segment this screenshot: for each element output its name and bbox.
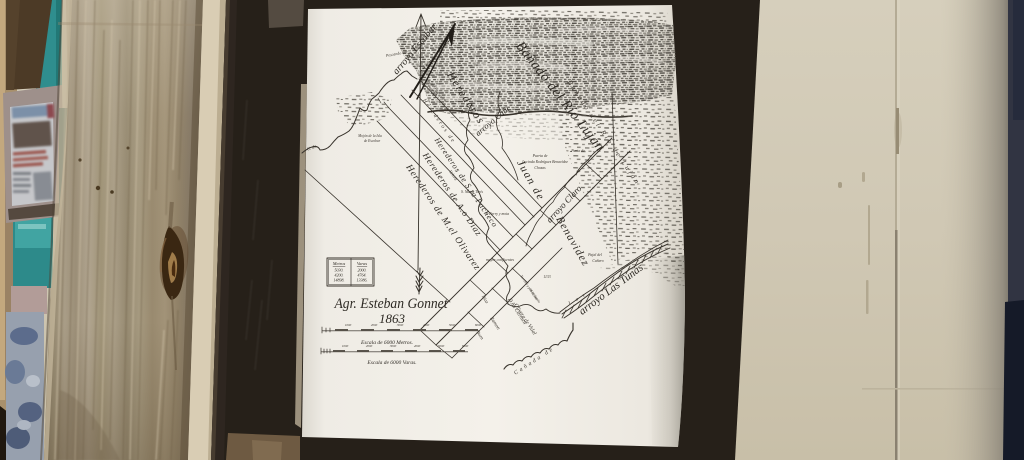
svg-text:4000: 4000 bbox=[423, 323, 430, 327]
svg-text:3000: 3000 bbox=[390, 344, 397, 348]
svg-text:2000: 2000 bbox=[366, 344, 373, 348]
svg-text:Pajal del: Pajal del bbox=[587, 253, 602, 257]
svg-text:1000: 1000 bbox=[345, 323, 352, 327]
svg-text:Escala de 6000 Varas.: Escala de 6000 Varas. bbox=[366, 360, 416, 366]
svg-text:Puerta de: Puerta de bbox=[532, 154, 548, 158]
svg-text:1000: 1000 bbox=[342, 344, 349, 348]
svg-text:6000: 6000 bbox=[475, 323, 482, 327]
svg-text:Varas: Varas bbox=[357, 261, 368, 266]
svg-text:13386.: 13386. bbox=[357, 278, 368, 283]
svg-text:de Escobar: de Escobar bbox=[364, 139, 381, 143]
svg-text:Metros: Metros bbox=[332, 261, 346, 266]
svg-text:S. María Torís: S. María Torís bbox=[461, 190, 483, 194]
svg-text:5000: 5000 bbox=[449, 323, 456, 327]
svg-text:14898.: 14898. bbox=[334, 278, 345, 283]
svg-text:Mojón de la Isla: Mojón de la Isla bbox=[357, 134, 382, 138]
svg-text:3000: 3000 bbox=[397, 323, 404, 327]
svg-text:2000: 2000 bbox=[371, 323, 378, 327]
svg-text:Agr. Esteban Gonnet: Agr. Esteban Gonnet bbox=[334, 296, 449, 312]
svg-text:A. Parry y mota: A. Parry y mota bbox=[484, 212, 509, 216]
svg-text:Punta de: Punta de bbox=[570, 149, 585, 153]
svg-text:Lucinda Rodríguez Benavídez: Lucinda Rodríguez Benavídez bbox=[521, 160, 568, 164]
svg-text:5000: 5000 bbox=[438, 344, 445, 348]
svg-text:1133: 1133 bbox=[543, 275, 550, 279]
svg-text:Cañero: Cañero bbox=[592, 259, 603, 263]
svg-text:4000: 4000 bbox=[414, 344, 421, 348]
svg-text:mayor confluentes: mayor confluentes bbox=[486, 258, 514, 262]
svg-text:6000: 6000 bbox=[462, 344, 469, 348]
svg-text:Chozas: Chozas bbox=[534, 166, 546, 170]
